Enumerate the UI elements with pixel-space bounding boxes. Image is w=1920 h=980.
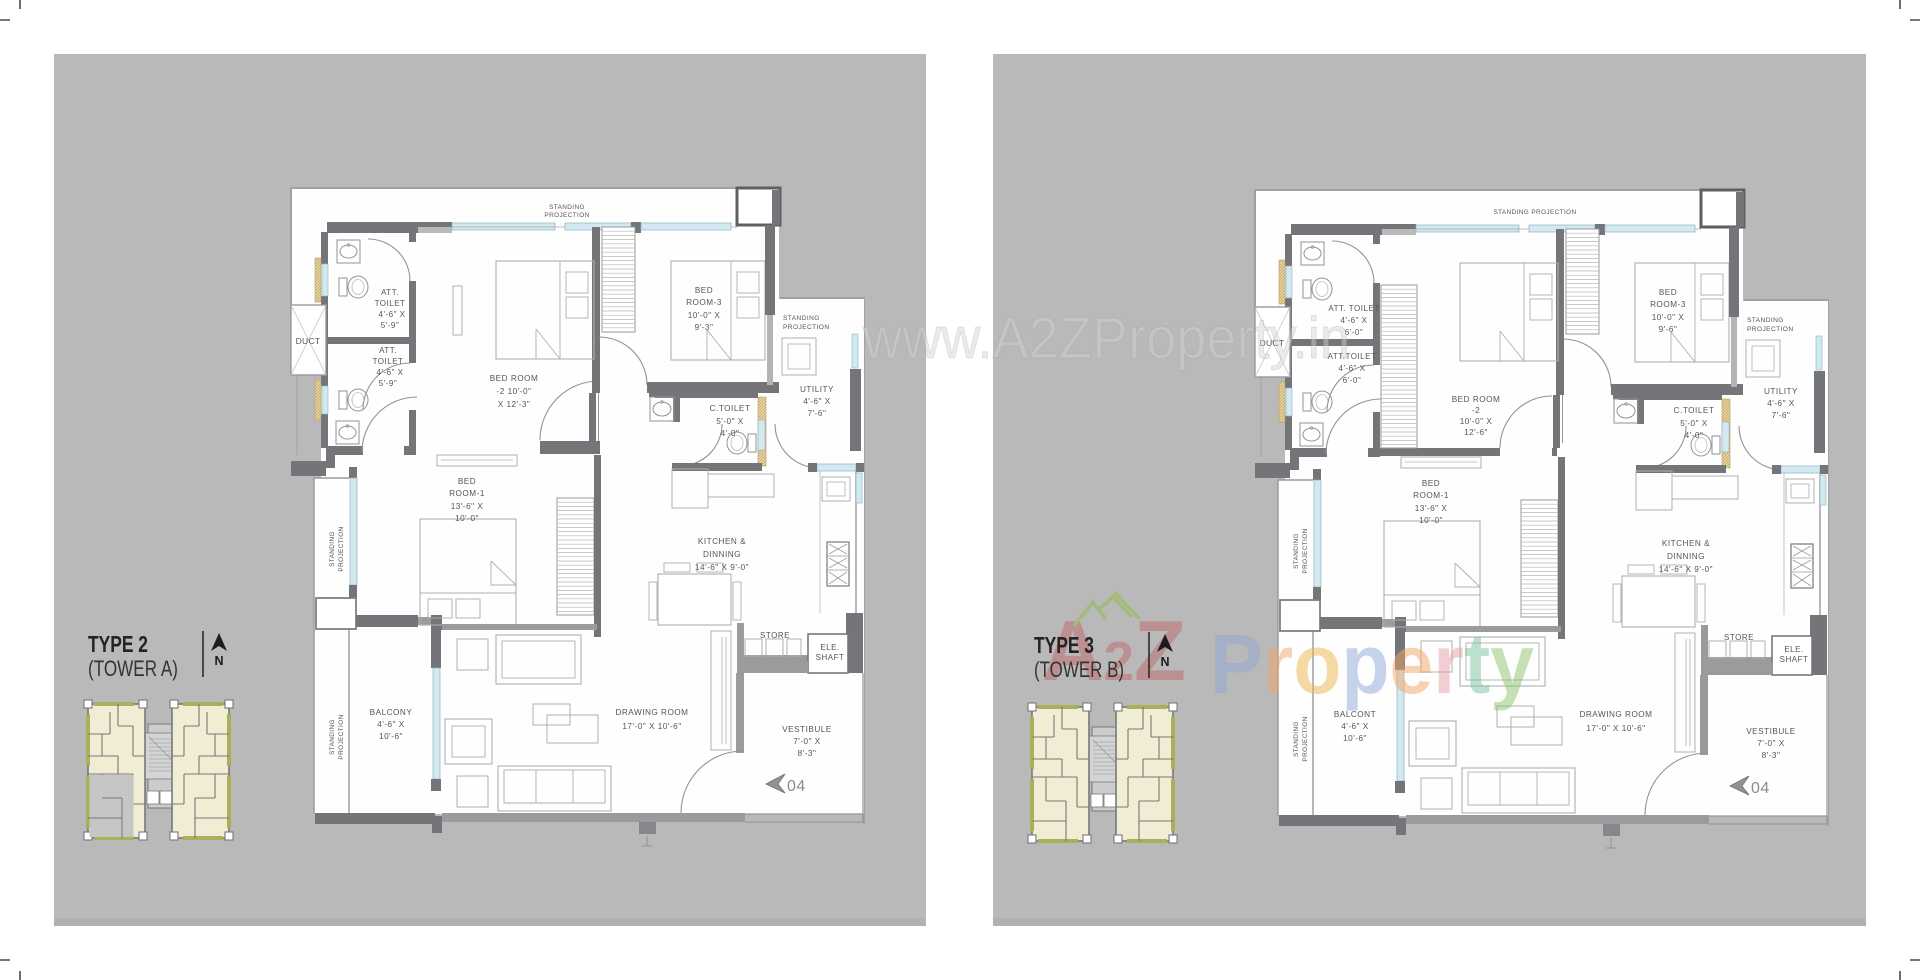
svg-text:PROJECTION: PROJECTION: [783, 324, 830, 331]
svg-text:9'-3": 9'-3": [695, 323, 714, 332]
svg-text:SHAFT: SHAFT: [1780, 655, 1809, 664]
svg-text:C.TOILET: C.TOILET: [710, 404, 751, 413]
svg-text:BED: BED: [1659, 288, 1677, 297]
svg-text:ATT.: ATT.: [381, 288, 399, 297]
svg-text:ATT.: ATT.: [379, 346, 397, 355]
svg-text:Property: Property: [1210, 617, 1534, 711]
svg-text:N: N: [1160, 655, 1169, 669]
svg-text:4'-6" X: 4'-6" X: [1341, 722, 1369, 731]
svg-text:TYPE 2: TYPE 2: [88, 631, 148, 657]
svg-text:BED ROOM: BED ROOM: [490, 374, 539, 383]
svg-text:BED ROOM: BED ROOM: [1452, 395, 1501, 404]
svg-text:4'-6" X: 4'-6" X: [1767, 399, 1795, 408]
svg-text:5'-9": 5'-9": [381, 321, 399, 330]
svg-text:STANDING: STANDING: [783, 315, 820, 322]
svg-text:4'-0": 4'-0": [721, 429, 740, 438]
svg-text:VESTIBULE: VESTIBULE: [1746, 727, 1796, 736]
svg-text:4'-6" X: 4'-6" X: [803, 397, 831, 406]
svg-text:10'-0" X: 10'-0" X: [1460, 417, 1493, 426]
svg-text:13'-6" X: 13'-6" X: [1415, 504, 1448, 513]
svg-text:10'-6": 10'-6": [1343, 734, 1367, 743]
svg-text:PROJECTION: PROJECTION: [544, 212, 589, 219]
svg-text:10'-0" X: 10'-0" X: [1652, 313, 1685, 322]
svg-text:4'-6" X: 4'-6" X: [379, 310, 406, 319]
svg-text:17'-0" X 10'-6": 17'-0" X 10'-6": [622, 722, 681, 731]
svg-text:DINNING: DINNING: [703, 550, 741, 559]
svg-text:PROJECTION: PROJECTION: [1747, 326, 1794, 333]
svg-text:BALCONT: BALCONT: [1334, 710, 1376, 719]
svg-text:ROOM-1: ROOM-1: [449, 489, 485, 498]
svg-text:N: N: [214, 654, 223, 668]
svg-text:17'-0" X 10'-6": 17'-0" X 10'-6": [1586, 724, 1645, 733]
svg-text:KITCHEN &: KITCHEN &: [698, 537, 746, 546]
svg-text:BED: BED: [695, 286, 713, 295]
svg-text:10'-0": 10'-0": [455, 514, 479, 523]
svg-text:6'-0": 6'-0": [1343, 376, 1361, 385]
svg-text:7'-6": 7'-6": [1772, 411, 1791, 420]
svg-text:PROJECTION: PROJECTION: [338, 714, 345, 759]
svg-text:-2 10'-0": -2 10'-0": [497, 387, 532, 396]
svg-text:(TOWER A): (TOWER A): [88, 656, 178, 681]
svg-text:4'-0": 4'-0": [1685, 431, 1704, 440]
svg-text:PROJECTION: PROJECTION: [1302, 716, 1309, 761]
svg-text:5'-9": 5'-9": [379, 379, 397, 388]
svg-text:www.A2ZProperty.in: www.A2ZProperty.in: [862, 306, 1350, 371]
svg-text:ELE.: ELE.: [1784, 645, 1803, 654]
svg-text:STORE: STORE: [760, 631, 790, 640]
svg-text:9'-6": 9'-6": [1659, 325, 1678, 334]
svg-text:10'-0": 10'-0": [1419, 516, 1443, 525]
svg-text:13'-6" X: 13'-6" X: [451, 502, 484, 511]
svg-text:12'-6": 12'-6": [1464, 428, 1488, 437]
svg-text:10'-6": 10'-6": [379, 732, 403, 741]
svg-text:TOILET: TOILET: [373, 357, 404, 366]
svg-text:C.TOILET: C.TOILET: [1674, 406, 1715, 415]
svg-text:BALCONY: BALCONY: [370, 708, 413, 717]
svg-text:DRAWING ROOM: DRAWING ROOM: [1579, 710, 1652, 719]
svg-text:STANDING: STANDING: [1747, 317, 1784, 324]
svg-text:14'-6" X 9'-0": 14'-6" X 9'-0": [1659, 565, 1713, 574]
svg-text:ELE.: ELE.: [820, 643, 839, 652]
svg-text:X 12'-3": X 12'-3": [498, 400, 531, 409]
svg-text:VESTIBULE: VESTIBULE: [782, 725, 832, 734]
svg-text:DRAWING ROOM: DRAWING ROOM: [615, 708, 688, 717]
svg-text:ROOM-3: ROOM-3: [686, 298, 722, 307]
svg-text:4'-6" X: 4'-6" X: [377, 368, 404, 377]
svg-text:TOILET: TOILET: [375, 299, 406, 308]
svg-text:ROOM-1: ROOM-1: [1413, 491, 1449, 500]
svg-text:5'-0" X: 5'-0" X: [1680, 419, 1708, 428]
svg-text:SHAFT: SHAFT: [816, 653, 845, 662]
svg-text:UTILITY: UTILITY: [800, 385, 834, 394]
svg-text:STANDING: STANDING: [329, 531, 336, 567]
svg-text:TYPE 3: TYPE 3: [1034, 632, 1094, 658]
svg-text:7'-0" X: 7'-0" X: [793, 737, 821, 746]
svg-text:STANDING: STANDING: [1293, 533, 1300, 569]
svg-text:5'-0" X: 5'-0" X: [716, 417, 744, 426]
svg-text:PROJECTION: PROJECTION: [338, 526, 345, 571]
svg-text:DINNING: DINNING: [1667, 552, 1705, 561]
svg-text:14'-6" X 9'-0": 14'-6" X 9'-0": [695, 563, 749, 572]
svg-text:STANDING PROJECTION: STANDING PROJECTION: [1493, 209, 1576, 216]
svg-text:DUCT: DUCT: [296, 336, 321, 346]
svg-text:7'-0" X: 7'-0" X: [1757, 739, 1785, 748]
svg-text:8'-3": 8'-3": [798, 749, 817, 758]
svg-text:BED: BED: [458, 477, 476, 486]
svg-text:ROOM-3: ROOM-3: [1650, 300, 1686, 309]
svg-text:STANDING: STANDING: [549, 204, 585, 211]
svg-text:STANDING: STANDING: [1293, 721, 1300, 757]
svg-text:STANDING: STANDING: [329, 719, 336, 755]
svg-text:7'-6": 7'-6": [808, 409, 827, 418]
svg-text:-2: -2: [1472, 406, 1480, 415]
svg-text:KITCHEN &: KITCHEN &: [1662, 539, 1710, 548]
svg-text:8'-3": 8'-3": [1762, 751, 1781, 760]
svg-text:BED: BED: [1422, 479, 1440, 488]
svg-text:04: 04: [787, 778, 806, 795]
svg-text:UTILITY: UTILITY: [1764, 387, 1798, 396]
svg-text:PROJECTION: PROJECTION: [1302, 528, 1309, 573]
svg-text:04: 04: [1751, 780, 1770, 797]
svg-text:4'-6" X: 4'-6" X: [377, 720, 405, 729]
svg-text:10'-0" X: 10'-0" X: [688, 311, 721, 320]
svg-text:STORE: STORE: [1724, 633, 1754, 642]
svg-text:(TOWER B): (TOWER B): [1034, 657, 1124, 682]
